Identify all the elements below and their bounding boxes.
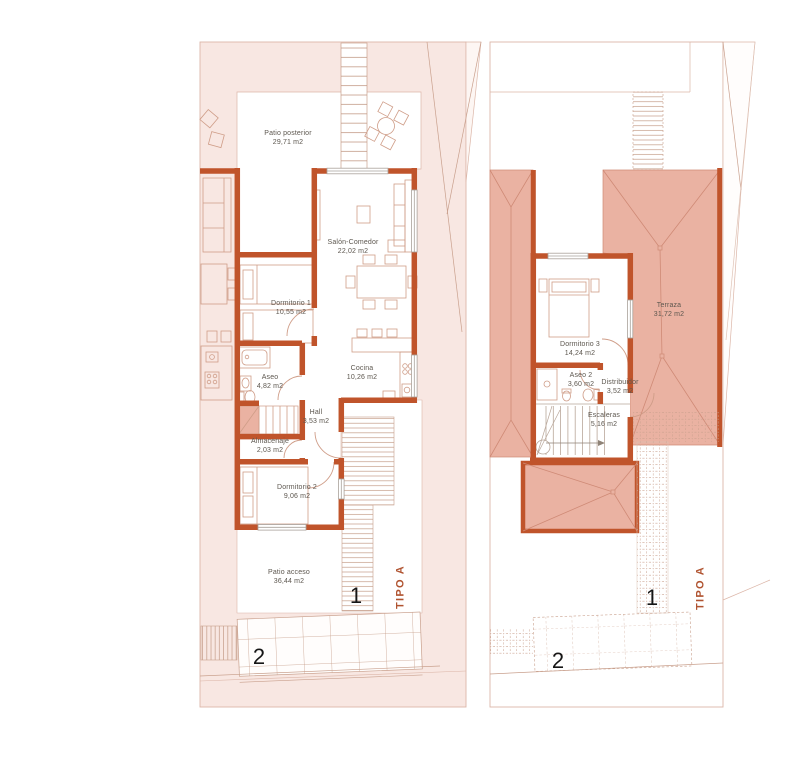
room-label-patio-posterior: Patio posterior 29,71 m2 xyxy=(264,129,311,147)
floor-plans-drawing xyxy=(0,0,800,773)
ground-floor-plan xyxy=(200,42,481,707)
room-label-salon-comedor: Salón-Comedor 22,02 m2 xyxy=(328,238,379,256)
room-label-dormitorio-1: Dormitorio 1 10,55 m2 xyxy=(271,299,311,317)
room-label-aseo-2: Aseo 2 3,60 m2 xyxy=(568,371,594,389)
ff-dotted-patch xyxy=(490,628,533,655)
floorplan-sheet: Patio posterior 29,71 m2 Salón-Comedor 2… xyxy=(0,0,800,773)
gf-plot-number-1: 1 xyxy=(350,585,362,607)
ff-dotted-band xyxy=(633,412,720,442)
gf-plot-number-2: 2 xyxy=(253,646,265,668)
gf-side-hatch xyxy=(201,626,237,660)
room-label-cocina: Cocina 10,26 m2 xyxy=(347,364,377,382)
room-label-patio-acceso: Patio acceso 36,44 m2 xyxy=(268,568,310,586)
room-label-terraza: Terraza 31,72 m2 xyxy=(654,301,684,319)
ff-plot-number-2: 2 xyxy=(552,650,564,672)
ff-left-roof xyxy=(490,170,533,457)
room-label-dormitorio-2: Dormitorio 2 9,06 m2 xyxy=(277,483,317,501)
ff-plot-sliver xyxy=(723,42,755,445)
first-floor-plan xyxy=(490,42,770,707)
ff-type-label: TIPO A xyxy=(696,566,707,610)
gf-plot-sliver xyxy=(466,42,481,182)
ff-pergola-strip xyxy=(633,92,663,170)
ff-lower-roof xyxy=(523,463,637,531)
gf-pergola-strip xyxy=(341,43,367,169)
ff-road-line xyxy=(723,580,770,600)
room-label-hall: Hall 3,53 m2 xyxy=(303,408,329,426)
gf-type-label: TIPO A xyxy=(396,565,407,609)
room-label-aseo: Aseo 4,82 m2 xyxy=(257,373,283,391)
room-label-escaleras: Escaleras 5,16 m2 xyxy=(588,411,620,429)
room-label-dormitorio-3: Dormitorio 3 14,24 m2 xyxy=(560,340,600,358)
room-label-almacenaje: Almacenaje 2,03 m2 xyxy=(251,437,289,455)
ff-plot-number-1: 1 xyxy=(646,587,658,609)
room-label-distribuidor: Distribuidor 3,52 m2 xyxy=(601,378,638,396)
